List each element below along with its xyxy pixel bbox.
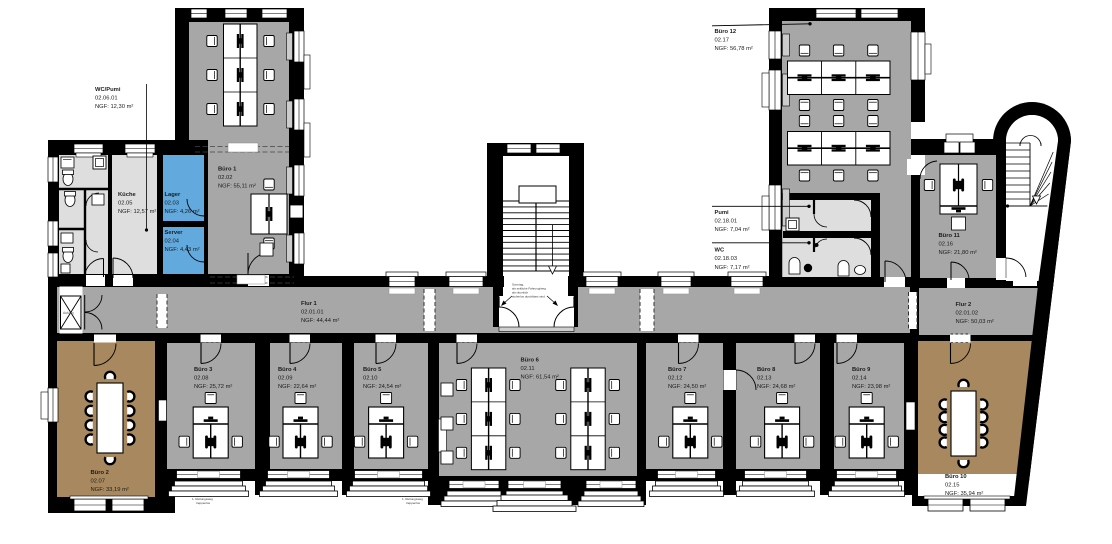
svg-text:Büro 9: Büro 9 bbox=[852, 367, 871, 373]
svg-text:Büro 7: Büro 7 bbox=[668, 367, 686, 373]
svg-text:02.12: 02.12 bbox=[668, 376, 683, 382]
svg-text:Büro 8: Büro 8 bbox=[757, 367, 776, 373]
svg-text:Büro 1: Büro 1 bbox=[218, 167, 237, 173]
svg-text:02.05: 02.05 bbox=[118, 201, 133, 207]
svg-text:WC: WC bbox=[715, 248, 725, 254]
svg-text:NGF: 44,44 m²: NGF: 44,44 m² bbox=[301, 318, 339, 324]
svg-text:Büro 11: Büro 11 bbox=[939, 233, 961, 239]
svg-text:Pumi: Pumi bbox=[715, 210, 730, 216]
svg-text:NGF: 24,54 m²: NGF: 24,54 m² bbox=[363, 384, 401, 390]
svg-text:Büro 4: Büro 4 bbox=[278, 367, 297, 373]
svg-text:02.13: 02.13 bbox=[757, 376, 772, 382]
svg-text:02.18.03: 02.18.03 bbox=[715, 256, 738, 262]
svg-text:NGF: 4,26 m²: NGF: 4,26 m² bbox=[165, 209, 200, 215]
svg-text:NGF: 7,17 m²: NGF: 7,17 m² bbox=[715, 265, 750, 271]
svg-text:02.18.01: 02.18.01 bbox=[715, 219, 738, 225]
svg-text:Flur 1: Flur 1 bbox=[301, 301, 318, 307]
svg-text:NGF: 35,94 m²: NGF: 35,94 m² bbox=[945, 491, 983, 497]
svg-text:NGF: 23,98 m²: NGF: 23,98 m² bbox=[852, 384, 890, 390]
svg-text:02.01.02: 02.01.02 bbox=[956, 311, 979, 317]
svg-text:Büro 10: Büro 10 bbox=[945, 474, 967, 480]
svg-text:02.04: 02.04 bbox=[165, 239, 180, 245]
svg-text:stufenlos durchlässt sind: stufenlos durchlässt sind bbox=[512, 295, 545, 299]
svg-text:treppenlos: treppenlos bbox=[196, 501, 211, 505]
svg-text:NGF: 24,50 m²: NGF: 24,50 m² bbox=[668, 384, 706, 390]
svg-text:Büro 3: Büro 3 bbox=[194, 367, 213, 373]
svg-text:NGF: 4,43 m²: NGF: 4,43 m² bbox=[165, 247, 200, 253]
svg-text:Büro 6: Büro 6 bbox=[521, 358, 540, 364]
svg-text:02.01.01: 02.01.01 bbox=[301, 310, 324, 316]
svg-text:NGF: 33,19 m²: NGF: 33,19 m² bbox=[91, 487, 129, 493]
svg-text:02.06.01: 02.06.01 bbox=[95, 96, 118, 102]
svg-text:02.15: 02.15 bbox=[945, 483, 960, 489]
svg-text:Flur 2: Flur 2 bbox=[956, 302, 972, 308]
svg-text:NGF: 12,57 m²: NGF: 12,57 m² bbox=[118, 209, 156, 215]
svg-text:02.14: 02.14 bbox=[852, 376, 867, 382]
svg-text:Lager: Lager bbox=[165, 192, 182, 198]
svg-text:02.08: 02.08 bbox=[194, 376, 209, 382]
svg-text:NGF: 61,54 m²: NGF: 61,54 m² bbox=[521, 375, 559, 381]
svg-text:NGF: 56,78 m²: NGF: 56,78 m² bbox=[715, 46, 753, 52]
svg-text:WC/Pumi: WC/Pumi bbox=[95, 87, 121, 93]
svg-text:NGF: 7,04 m²: NGF: 7,04 m² bbox=[715, 227, 750, 233]
svg-text:02.17: 02.17 bbox=[715, 38, 730, 44]
svg-text:Küche: Küche bbox=[118, 192, 136, 198]
svg-text:02.07: 02.07 bbox=[91, 479, 106, 485]
svg-text:NGF: 25,72 m²: NGF: 25,72 m² bbox=[194, 384, 232, 390]
svg-text:02.03: 02.03 bbox=[165, 201, 180, 207]
svg-text:Server: Server bbox=[165, 230, 184, 236]
svg-text:NGF: 12,30 m²: NGF: 12,30 m² bbox=[95, 104, 133, 110]
svg-text:Büro 12: Büro 12 bbox=[715, 29, 737, 35]
svg-text:Büro 2: Büro 2 bbox=[91, 470, 109, 476]
svg-text:Aufzug: Aufzug bbox=[63, 311, 74, 315]
svg-text:02.10: 02.10 bbox=[363, 376, 378, 382]
svg-text:treppenlos: treppenlos bbox=[406, 501, 421, 505]
svg-text:NGF: 22,64 m²: NGF: 22,64 m² bbox=[278, 384, 316, 390]
svg-text:02.02: 02.02 bbox=[218, 175, 233, 181]
svg-text:NGF: 21,80 m²: NGF: 21,80 m² bbox=[939, 250, 977, 256]
svg-text:NGF: 50,03 m²: NGF: 50,03 m² bbox=[956, 319, 994, 325]
svg-text:NGF: 55,11 m²: NGF: 55,11 m² bbox=[218, 184, 256, 190]
svg-text:02.09: 02.09 bbox=[278, 376, 293, 382]
svg-text:02.16: 02.16 bbox=[939, 242, 954, 248]
svg-text:Büro 5: Büro 5 bbox=[363, 367, 382, 373]
svg-text:02.11: 02.11 bbox=[521, 366, 535, 372]
svg-text:NGF: 24,68 m²: NGF: 24,68 m² bbox=[757, 384, 795, 390]
